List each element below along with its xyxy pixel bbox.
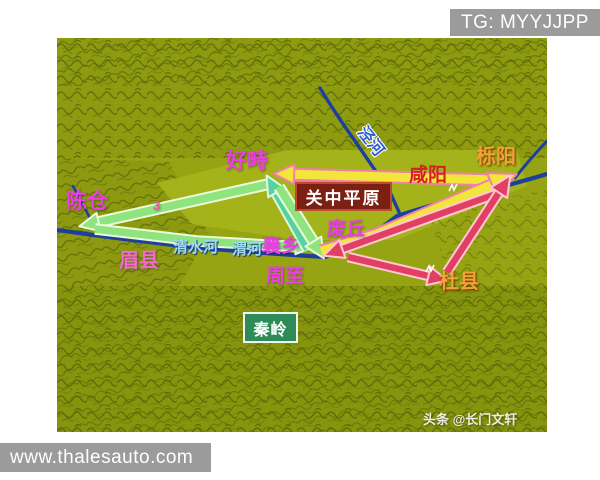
label-chencang: 陈仓 xyxy=(66,191,108,212)
label-xiangxiang: 襄乡 xyxy=(262,237,300,256)
label-xianyang: 咸阳 xyxy=(409,166,447,185)
map-terrain-and-routes xyxy=(57,38,547,432)
label-zhouzhi: 周至 xyxy=(266,267,304,286)
label-wei-river: 渭河 xyxy=(232,242,262,257)
label-guanzhong-plain-box: 关中平原 xyxy=(295,182,392,211)
campaign-map: 陈仓 好畤 栎阳 咸阳 废丘 襄乡 周至 眉县 杜县 清水河 渭河 泾河 3 关… xyxy=(57,38,547,432)
author-credit: 头条 @长门文轩 xyxy=(423,409,517,428)
label-qingshui-river: 清水河 xyxy=(173,240,218,255)
watermark-bottom-left: www.thalesauto.com xyxy=(0,443,211,472)
label-liyang: 栎阳 xyxy=(476,147,516,167)
page: { "banners": { "top_right": "TG: MYYJJPP… xyxy=(0,0,600,480)
label-duxian: 杜县 xyxy=(439,272,479,292)
label-qinling-box: 秦岭 xyxy=(243,312,298,343)
watermark-top-right: TG: MYYJJPP xyxy=(450,9,600,36)
label-meixian: 眉县 xyxy=(119,251,159,271)
label-haozhi: 好畤 xyxy=(226,151,268,172)
label-route-number-3: 3 xyxy=(153,199,160,212)
label-feiqiu: 废丘 xyxy=(327,220,365,239)
